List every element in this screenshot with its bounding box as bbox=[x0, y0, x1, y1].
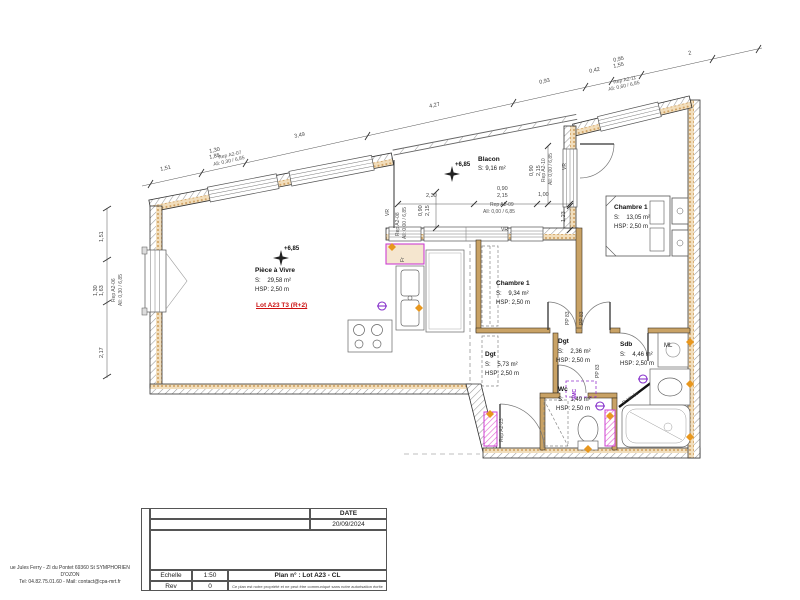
label-rep-a2-23: Rep A2-23 bbox=[500, 418, 505, 442]
room-area-balcon: S: 9,16 m² bbox=[478, 166, 506, 172]
lot-label: Lot A23 T3 (R+2) bbox=[256, 303, 307, 310]
room-area-chambre-mid: S: 9,34 m² bbox=[496, 291, 529, 297]
disclaimer: Ce plan est notre propriété et ne peut ê… bbox=[228, 581, 387, 591]
label-vr-right: VR bbox=[563, 163, 568, 170]
dim-bl-b: 2,15 bbox=[426, 205, 432, 216]
date-label: DATE bbox=[310, 508, 387, 519]
room-area-piece-a-vivre: S: 29,58 m² bbox=[255, 278, 291, 284]
wall-bottom-left bbox=[150, 384, 471, 394]
kitchen-island bbox=[426, 250, 464, 332]
room-hsp-sdb: HSP: 2,50 m bbox=[620, 361, 654, 367]
plan-number-text: Plan n° : Lot A23 - CL bbox=[275, 572, 341, 579]
date-value: 20/09/2024 bbox=[310, 519, 387, 530]
disclaimer-text: Ce plan est notre propriété et ne peut ê… bbox=[232, 584, 383, 589]
room-name-sdb: Sdb bbox=[620, 342, 632, 349]
wall-left bbox=[142, 206, 187, 388]
rep-a2-10-all: All: 0,00 / 6,85 bbox=[549, 153, 554, 185]
room-area-dgt: S: 5,73 m² bbox=[485, 362, 518, 368]
rev-label: Rev bbox=[150, 581, 192, 591]
balcony-railing bbox=[393, 114, 578, 155]
label-vr-bay: VR bbox=[501, 228, 508, 233]
address-line-2: Tel: 04.82.75.01.60 - Mail: contact@cpa-… bbox=[0, 579, 140, 586]
room-name-dgt: Dgt bbox=[485, 352, 496, 359]
dim-left-a: 1,51 bbox=[100, 231, 106, 242]
rep-a2-10-id: Rep A2-10 bbox=[542, 158, 547, 182]
room-hsp-chambre-mid: HSP: 2,50 m bbox=[496, 300, 530, 306]
room-name-chambre-right: Chambre 1 bbox=[614, 205, 648, 212]
dim-br-b: 2,15 bbox=[537, 165, 543, 176]
room-hsp-wc: HSP: 2,50 m bbox=[556, 406, 590, 412]
pillow bbox=[650, 228, 664, 251]
stove bbox=[348, 320, 392, 352]
room-name-piece-a-vivre: Pièce à Vivre bbox=[255, 268, 295, 275]
wall-balcony-interior bbox=[386, 227, 578, 241]
room-hsp-dgt: HSP: 2,50 m bbox=[485, 371, 519, 377]
label-pp83-c: PP 83 bbox=[596, 364, 601, 378]
rep-a2-08-id: Rep A2-08 bbox=[396, 212, 401, 236]
rep-a2-09-id: Rep A2-09 bbox=[490, 203, 514, 208]
date-label-text: DATE bbox=[340, 510, 357, 517]
room-hsp-chambre-right: HSP: 2,50 m bbox=[614, 224, 648, 230]
label-vr-left: VR bbox=[386, 209, 391, 216]
title-block-empty-1 bbox=[150, 508, 310, 519]
label-pp83-b: PP 83 bbox=[580, 311, 585, 325]
washbasin bbox=[658, 378, 682, 396]
label-fr: Fr bbox=[401, 257, 406, 262]
room-area-chambre-right: S: 13,05 m² bbox=[614, 215, 650, 221]
dim-balc-b2: 2,15 bbox=[497, 194, 508, 200]
room-hsp-dgt-small: HSP: 2,50 m bbox=[556, 358, 590, 364]
sink-bowl bbox=[401, 300, 419, 326]
rev-label-text: Rev bbox=[165, 583, 177, 590]
rep-a2-06-all: All: 0,30 / 6,85 bbox=[119, 274, 124, 306]
rep-a2-08-all: All: 0,00 / 6,85 bbox=[403, 207, 408, 239]
scale-value: 1:50 bbox=[192, 570, 228, 581]
label-ml: ML bbox=[664, 343, 672, 349]
rep-a2-09-all: All: 0,00 / 6,85 bbox=[483, 210, 515, 215]
room-hsp-piece-a-vivre: HSP: 2,50 m bbox=[255, 287, 289, 293]
room-name-wc: Wc bbox=[558, 387, 568, 394]
toilet bbox=[578, 416, 598, 442]
dim-balc-b1: 0,90 bbox=[497, 187, 508, 193]
scale-label-text: Echelle bbox=[160, 572, 181, 579]
level-balcony: +6,85 bbox=[455, 162, 470, 168]
title-block-strip bbox=[141, 508, 150, 591]
rev-value: 0 bbox=[192, 581, 228, 591]
scale-label: Echelle bbox=[150, 570, 192, 581]
pillow bbox=[650, 201, 664, 224]
plan-number: Plan n° : Lot A23 - CL bbox=[228, 570, 387, 581]
sink-bowl bbox=[401, 270, 419, 296]
title-block-body bbox=[150, 530, 387, 570]
room-name-balcon: Blacon bbox=[478, 157, 500, 164]
dim-balc-d: 1,23 bbox=[562, 211, 568, 222]
dim-balc-c: 1,00 bbox=[538, 193, 549, 199]
room-name-dgt-small: Dgt bbox=[558, 339, 569, 346]
room-area-dgt-small: S: 2,36 m² bbox=[558, 349, 591, 355]
kitchen-fixtures bbox=[348, 244, 464, 352]
company-address: ue Jules Ferry - ZI du Pontet 69360 St S… bbox=[0, 565, 140, 586]
dim-left-b2: 1,63 bbox=[100, 285, 106, 296]
address-line-1: ue Jules Ferry - ZI du Pontet 69360 St S… bbox=[0, 565, 140, 579]
label-pp83-a: PP 83 bbox=[566, 311, 571, 325]
label-vmc: VMC bbox=[573, 389, 578, 400]
rev-value-text: 0 bbox=[208, 583, 212, 590]
room-name-chambre-mid: Chambre 1 bbox=[496, 281, 530, 288]
dim-left-c: 2,17 bbox=[100, 347, 106, 358]
floor-plan-sheet: DATE 20/09/2024 Echelle 1:50 Plan n° : L… bbox=[0, 0, 800, 600]
wall-top-left bbox=[149, 152, 394, 214]
level-living: +6,85 bbox=[284, 246, 299, 252]
dim-br-a: 0,90 bbox=[530, 165, 536, 176]
dim-balc-a: 2,30 bbox=[426, 194, 437, 200]
rep-a2-06-id: Rep A2-06 bbox=[112, 278, 117, 302]
wall-top-right bbox=[572, 94, 692, 137]
scale-value-text: 1:50 bbox=[204, 572, 217, 579]
dim-bl-a: 0,90 bbox=[419, 205, 425, 216]
date-value-text: 20/09/2024 bbox=[332, 521, 365, 528]
room-area-sdb: S: 4,46 m² bbox=[620, 352, 653, 358]
title-block-empty-2 bbox=[150, 519, 310, 530]
